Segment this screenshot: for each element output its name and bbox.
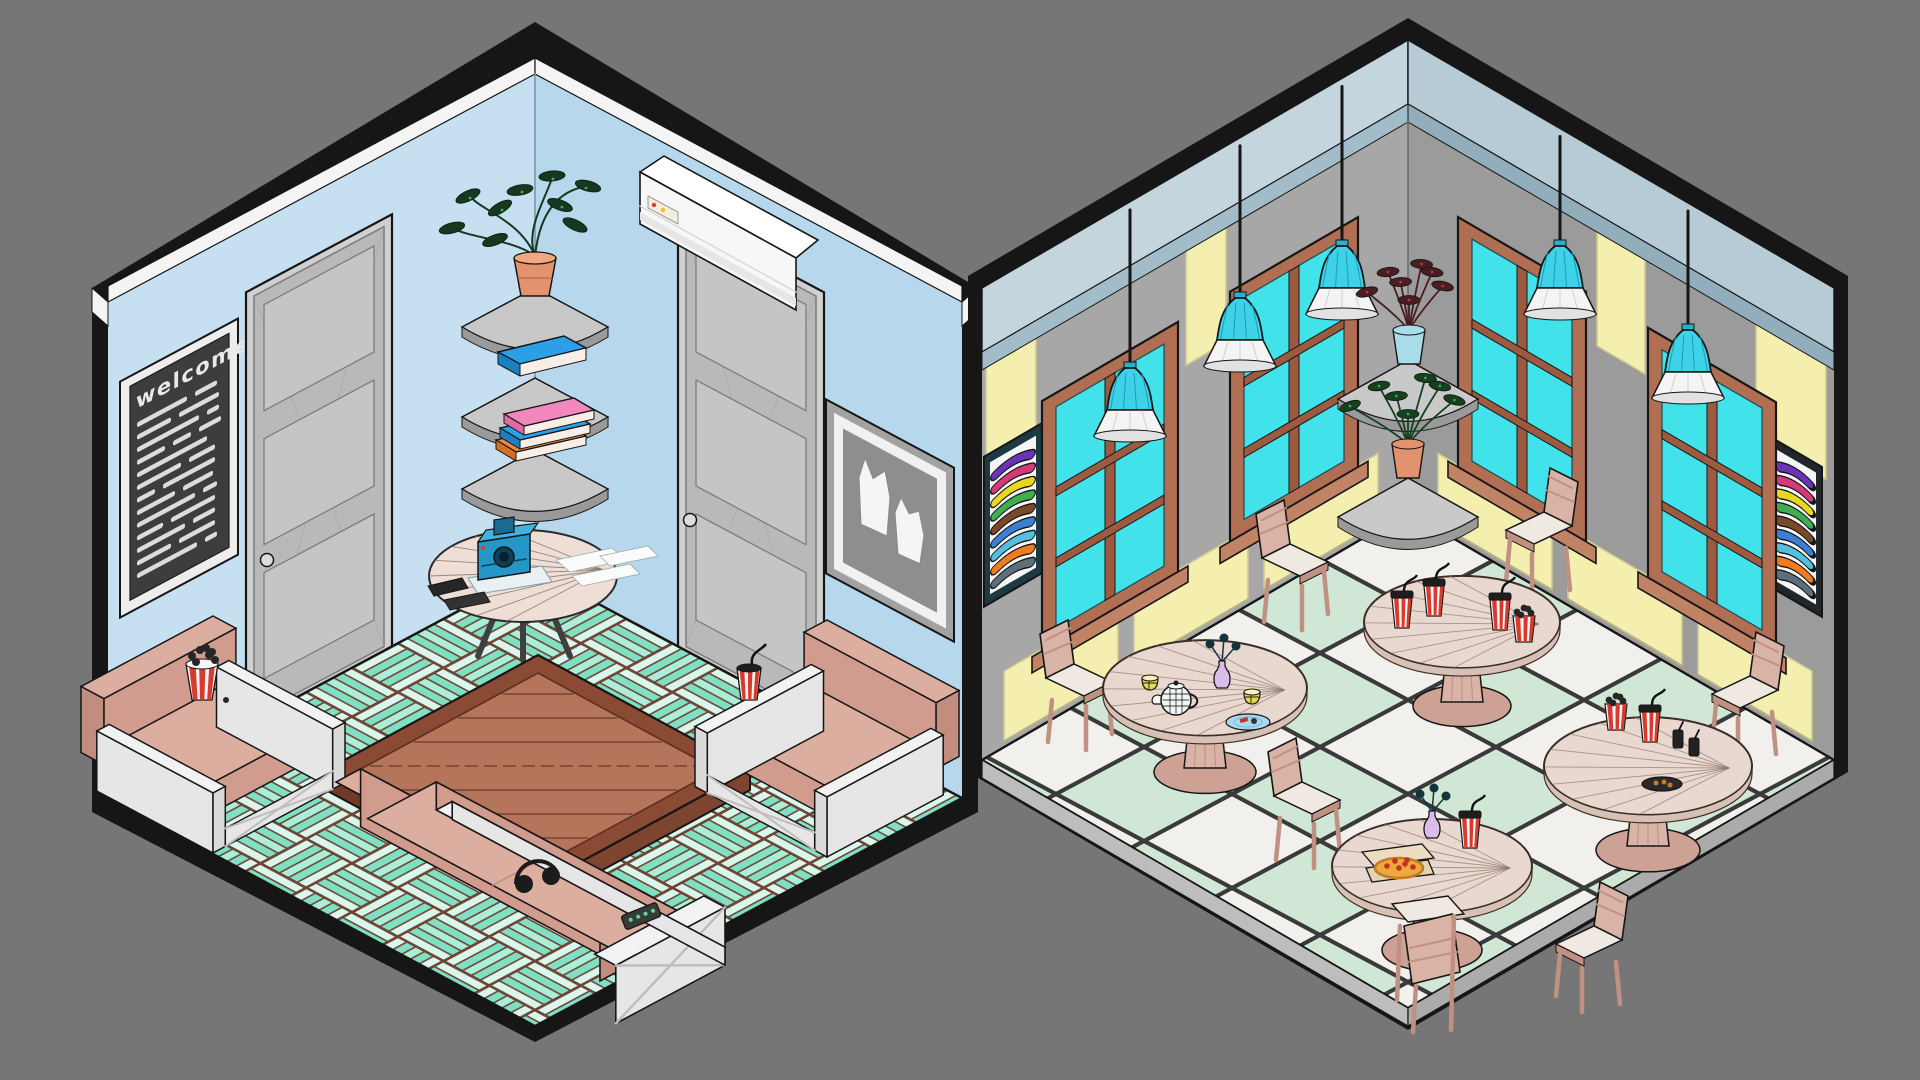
pot-rim: [1393, 325, 1425, 335]
leaf-speckle: [1349, 405, 1352, 408]
popcorn-bucket: [1513, 605, 1535, 642]
skirt-bottom: [1094, 430, 1166, 442]
cafe-chair-part: [1397, 926, 1400, 1000]
flower-head: [1206, 640, 1215, 649]
skirt-bottom: [1204, 360, 1276, 372]
flower-head: [1430, 784, 1439, 793]
armrest-front: [815, 790, 827, 857]
cup-lid: [1639, 705, 1661, 712]
camera-dot: [481, 546, 485, 550]
ac-light-red: [652, 203, 656, 207]
cup-lid: [1459, 811, 1481, 818]
cafe-chair-part: [1616, 962, 1620, 1004]
door-knob: [684, 514, 697, 527]
leaf-speckle: [521, 191, 524, 194]
pepperoni: [1410, 864, 1416, 870]
left-room-living-room: welcome: [81, 22, 978, 1042]
teacup: [1142, 675, 1158, 690]
skirt-bottom: [1524, 308, 1596, 320]
popcorn-bucket: [1605, 693, 1627, 730]
cup-lid: [1489, 593, 1511, 600]
plate-base: [1226, 714, 1270, 730]
pot-rim: [1392, 439, 1424, 449]
popcorn-kernel: [1610, 700, 1617, 707]
popcorn-kernel: [223, 697, 229, 703]
window-mullion: [1707, 376, 1717, 604]
popcorn-kernel: [192, 658, 200, 666]
right-room-cafe: [968, 18, 1848, 1032]
leaf-speckle: [1424, 377, 1427, 380]
cafe-chair-part: [1451, 916, 1454, 1030]
pepperoni: [1392, 858, 1398, 864]
pepperoni: [1396, 865, 1402, 871]
window-mullion: [1517, 265, 1527, 493]
dark-plate: [1642, 777, 1682, 791]
leaf-speckle: [1408, 299, 1411, 302]
popcorn-kernel: [1525, 606, 1532, 613]
cup-lid: [737, 664, 761, 672]
flower-head: [1232, 642, 1241, 651]
leaf-speckle: [1453, 399, 1456, 402]
leaf-speckle: [1420, 263, 1423, 266]
leaf-speckle: [1439, 385, 1442, 388]
teapot-knob: [1174, 681, 1179, 686]
camera-lens-core: [499, 552, 509, 562]
popcorn-kernel: [211, 656, 219, 664]
food: [1654, 781, 1659, 786]
isometric-rooms-illustration: welcome: [0, 0, 1920, 1080]
door: [678, 214, 824, 732]
cup-lid: [1391, 591, 1413, 598]
flower-head: [1220, 634, 1229, 643]
food: [1251, 718, 1257, 724]
camera-viewfinder: [494, 517, 514, 535]
ear-cup: [542, 867, 560, 885]
ear-cup: [515, 875, 533, 893]
cup-rim: [1142, 675, 1158, 681]
cup-rim: [1244, 689, 1260, 695]
pepperoni: [1384, 863, 1390, 869]
food: [1668, 783, 1673, 788]
pot-rim: [514, 252, 556, 264]
cafe-chair-part: [1413, 986, 1416, 1032]
skirt-bottom: [1652, 392, 1724, 404]
cafe-chair-part: [1556, 954, 1560, 996]
skirt-bottom: [1306, 308, 1378, 320]
leaf-speckle: [1431, 271, 1434, 274]
bottle-body: [1673, 730, 1683, 748]
leaf-speckle: [1407, 413, 1410, 416]
leaf-speckle: [1387, 271, 1390, 274]
scene-background: welcome: [0, 0, 1920, 1080]
armrest-front: [213, 786, 225, 853]
plate: [1226, 714, 1270, 730]
popcorn-kernel: [208, 648, 216, 656]
leaf-speckle: [501, 209, 504, 212]
popcorn-kernel: [1518, 612, 1525, 619]
pepperoni: [1404, 857, 1410, 863]
teacup: [1244, 689, 1260, 704]
leaf-speckle: [1441, 285, 1444, 288]
armrest-front: [695, 727, 707, 794]
plate-base: [1642, 777, 1682, 791]
bottle-body: [1689, 738, 1699, 756]
ac-light-yellow: [661, 208, 665, 212]
leaf-speckle: [1366, 291, 1369, 294]
leaf-speckle: [561, 206, 564, 209]
cup-lid: [1423, 579, 1445, 586]
food: [1662, 780, 1667, 785]
window-mullion: [1289, 266, 1299, 494]
flower-head: [1416, 790, 1425, 799]
door-knob: [261, 554, 274, 567]
leaf-speckle: [585, 187, 588, 190]
popcorn-kernel: [1617, 694, 1624, 701]
striped-poster: [984, 423, 1042, 607]
leaf-speckle: [1395, 395, 1398, 398]
door: [246, 214, 392, 732]
leaf-speckle: [469, 197, 472, 200]
leaf-speckle: [1378, 385, 1381, 388]
flower-head: [1442, 792, 1451, 801]
leaf-speckle: [552, 178, 555, 181]
leaf-speckle: [1399, 281, 1402, 284]
